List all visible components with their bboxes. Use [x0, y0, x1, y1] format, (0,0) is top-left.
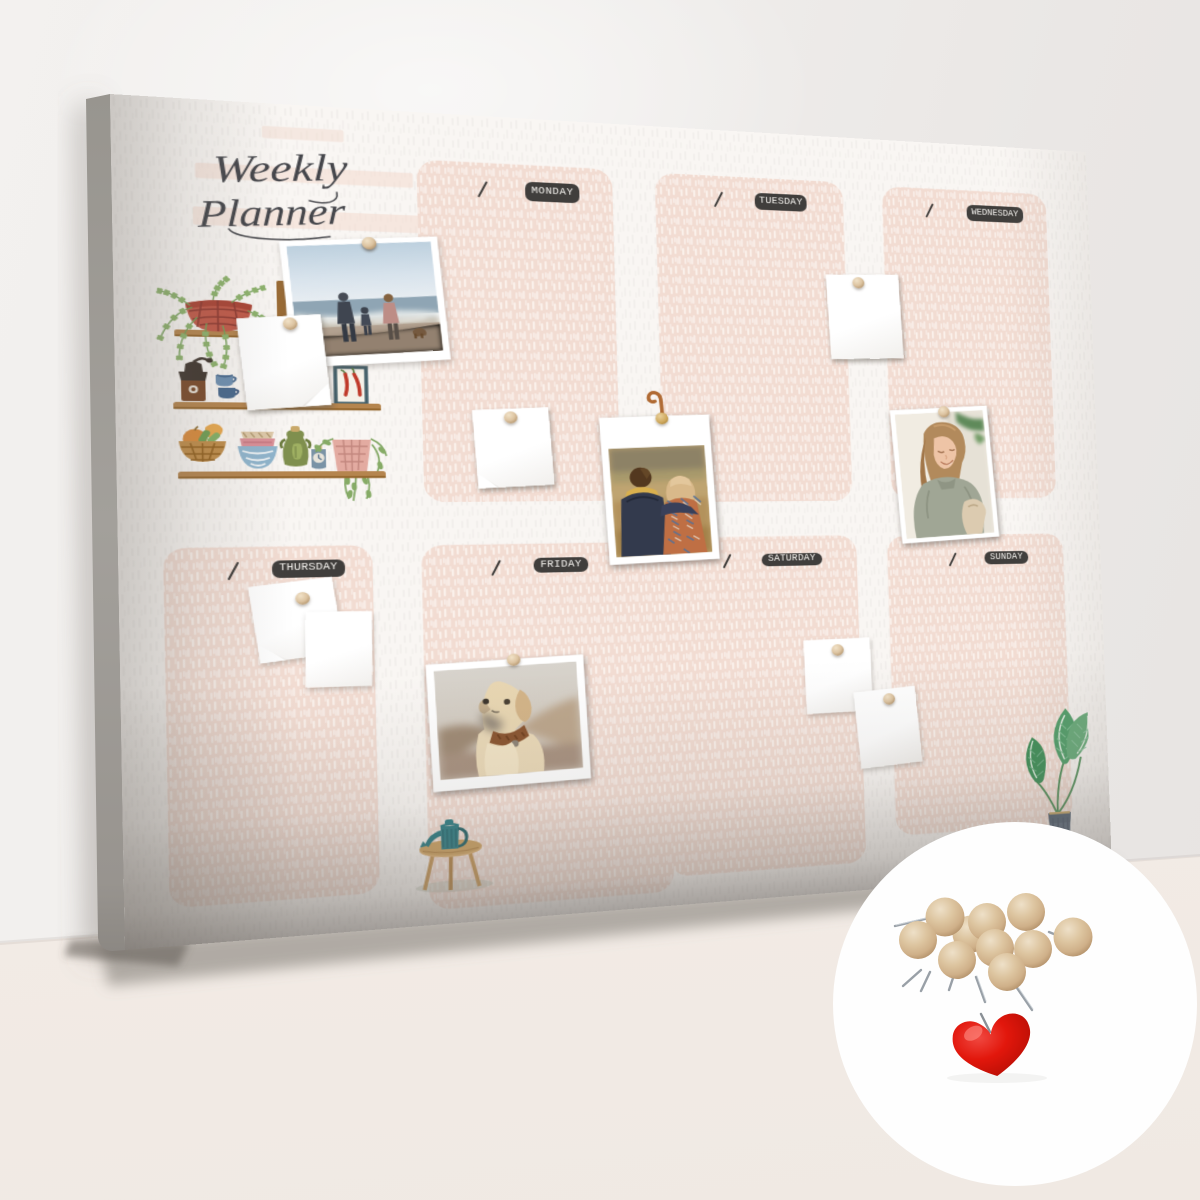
svg-text:Planner: Planner	[197, 191, 347, 236]
svg-text:Weekly: Weekly	[212, 147, 349, 190]
